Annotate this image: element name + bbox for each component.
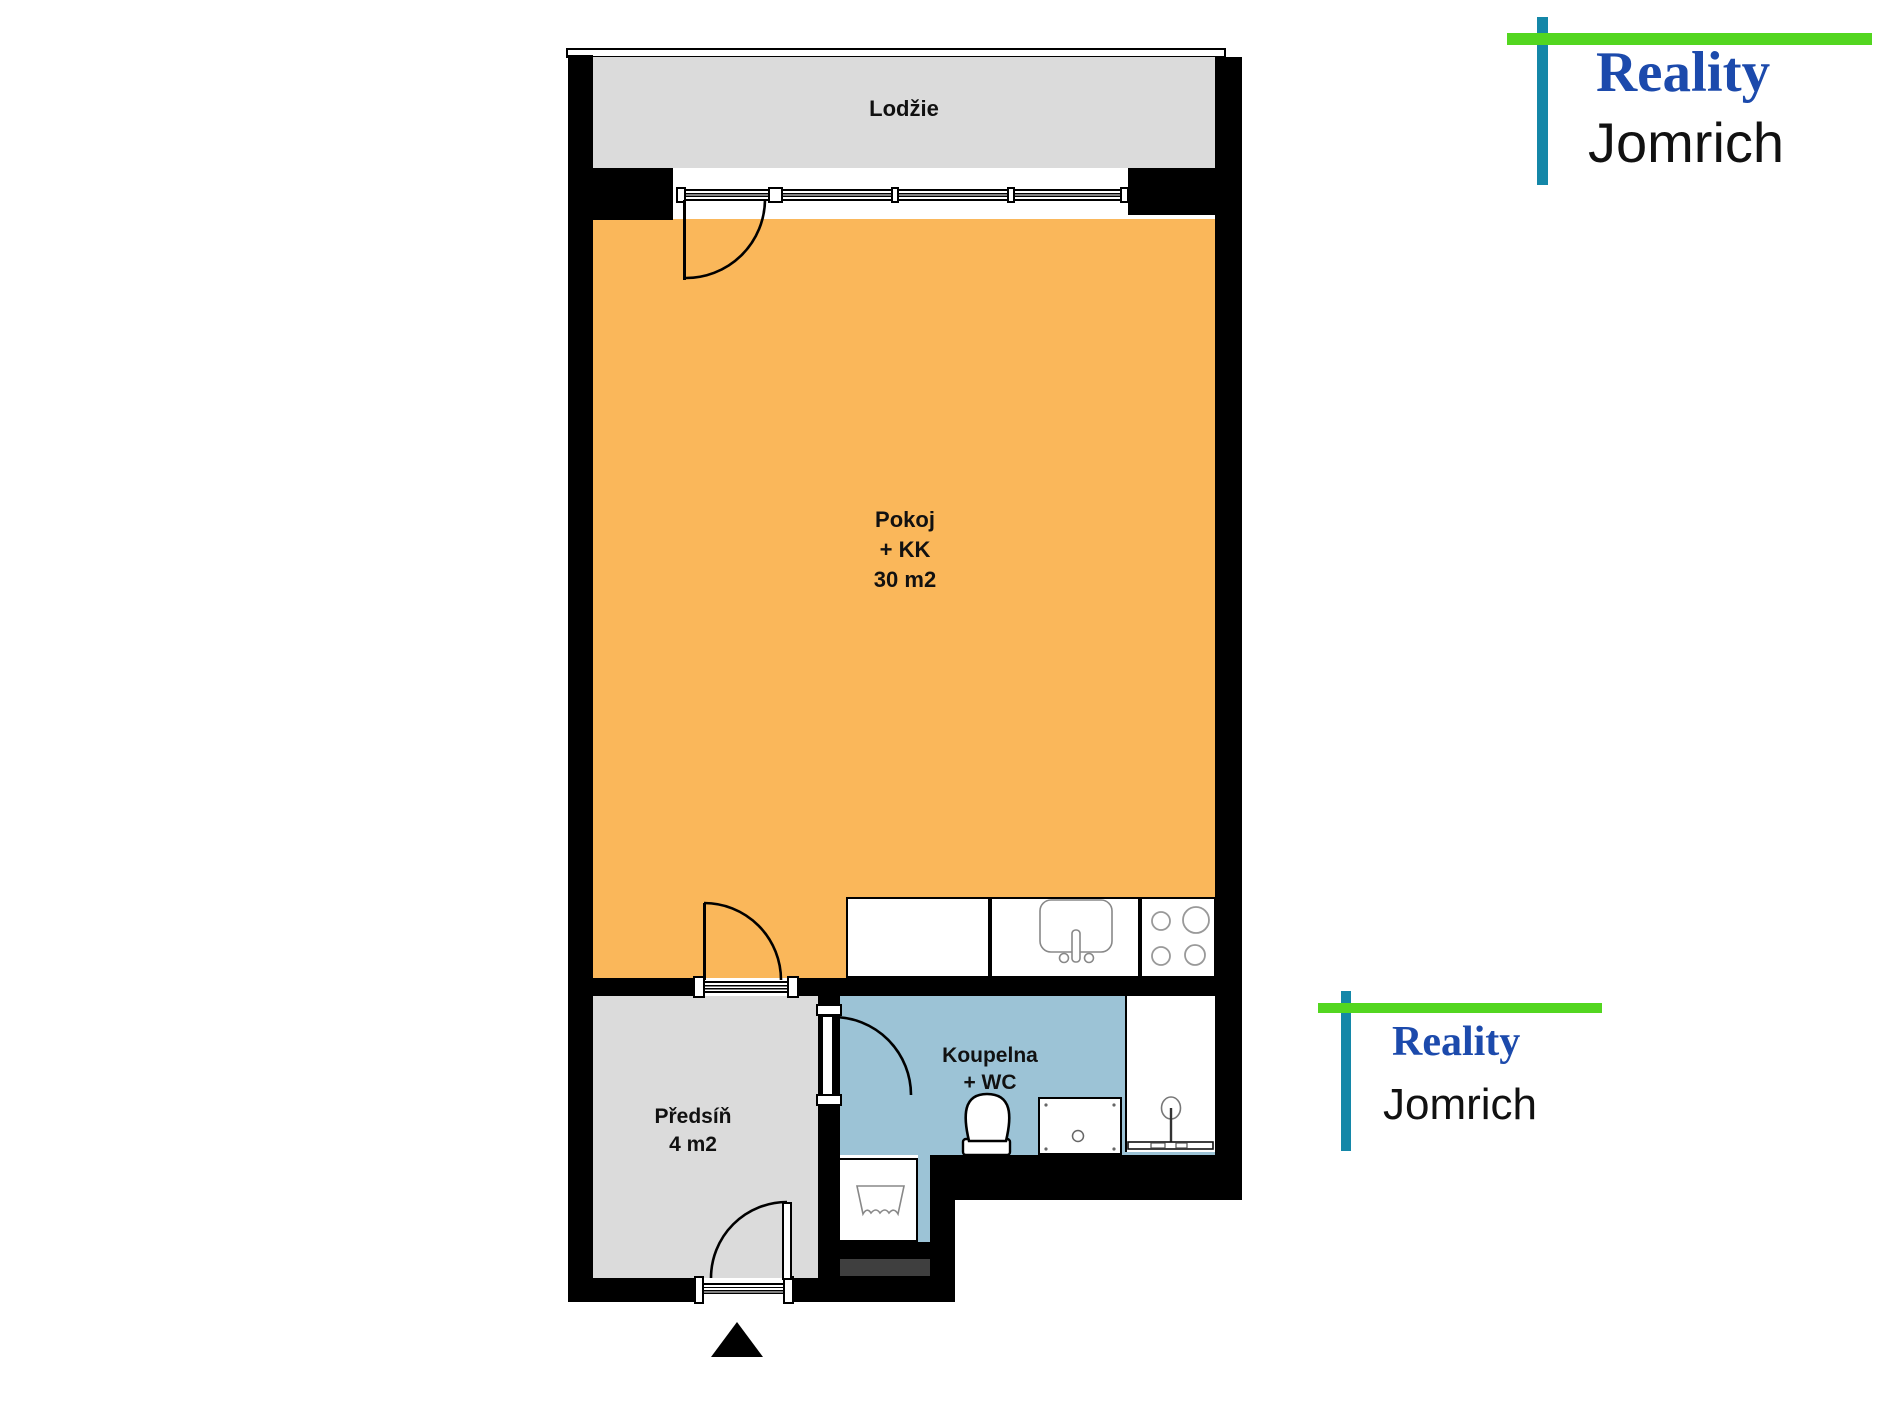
doormat-bar bbox=[840, 1259, 930, 1276]
logo-brand-line1: Reality bbox=[1596, 40, 1770, 105]
living-room-area bbox=[593, 219, 1215, 978]
wall bbox=[796, 978, 1242, 996]
loggia-label-text: Lodžie bbox=[869, 96, 939, 121]
entrance-arrow-icon bbox=[711, 1322, 763, 1357]
entrance-threshold bbox=[704, 1283, 783, 1294]
room-name: Koupelna bbox=[860, 1042, 1120, 1069]
room-area: 4 m2 bbox=[593, 1131, 793, 1159]
logo-green-bar bbox=[1318, 1003, 1602, 1013]
logo-teal-bar bbox=[1341, 991, 1351, 1151]
logo-brand-line2: Jomrich bbox=[1588, 110, 1784, 175]
logo-brand-line1: Reality bbox=[1392, 1018, 1520, 1066]
room-suffix: + WC bbox=[860, 1069, 1120, 1096]
hall-door-leaf bbox=[703, 903, 706, 980]
room-suffix: + KK bbox=[745, 535, 1065, 565]
door-jamb bbox=[787, 976, 799, 998]
window-mullion bbox=[891, 187, 899, 203]
door-jamb bbox=[694, 1276, 704, 1304]
living-room-label: Pokoj + KK 30 m2 bbox=[745, 505, 1065, 595]
room-name: Pokoj bbox=[745, 505, 1065, 535]
room-name: Předsíň bbox=[593, 1103, 793, 1131]
wall bbox=[568, 55, 593, 1302]
wall bbox=[793, 1278, 955, 1302]
wall bbox=[568, 168, 673, 220]
loggia-label: Lodžie bbox=[593, 97, 1215, 121]
bathroom-white-area bbox=[1125, 996, 1215, 1152]
hallway-label: Předsíň 4 m2 bbox=[593, 1103, 793, 1159]
logo-brand-line2: Jomrich bbox=[1383, 1080, 1537, 1130]
wall bbox=[930, 1155, 1242, 1200]
window-mullion bbox=[768, 187, 783, 203]
bathroom-door-leaf bbox=[821, 1015, 834, 1096]
window-mullion bbox=[1120, 187, 1129, 203]
bathroom-label: Koupelna + WC bbox=[860, 1042, 1120, 1096]
entrance-door-leaf bbox=[782, 1202, 792, 1280]
bathroom-floor-strip bbox=[918, 1155, 930, 1243]
room-area: 30 m2 bbox=[745, 565, 1065, 595]
window-mullion bbox=[1007, 187, 1015, 203]
shower-tray bbox=[1038, 1097, 1122, 1155]
window-band bbox=[676, 189, 1128, 201]
balcony-door-leaf bbox=[683, 200, 686, 280]
wall bbox=[1215, 57, 1242, 1200]
hall-door-threshold bbox=[705, 981, 787, 993]
kitchen-counter bbox=[846, 897, 990, 978]
kitchen-sink-counter bbox=[990, 897, 1140, 978]
wardrobe-box bbox=[838, 1158, 918, 1242]
stove-counter bbox=[1140, 897, 1216, 978]
door-jamb bbox=[783, 1276, 794, 1304]
floorplan-canvas: Lodžie Pokoj + KK 30 m2 Koupelna + WC Př… bbox=[0, 0, 1891, 1418]
wall bbox=[593, 978, 693, 996]
wall bbox=[568, 1278, 695, 1302]
wall bbox=[1128, 168, 1242, 215]
